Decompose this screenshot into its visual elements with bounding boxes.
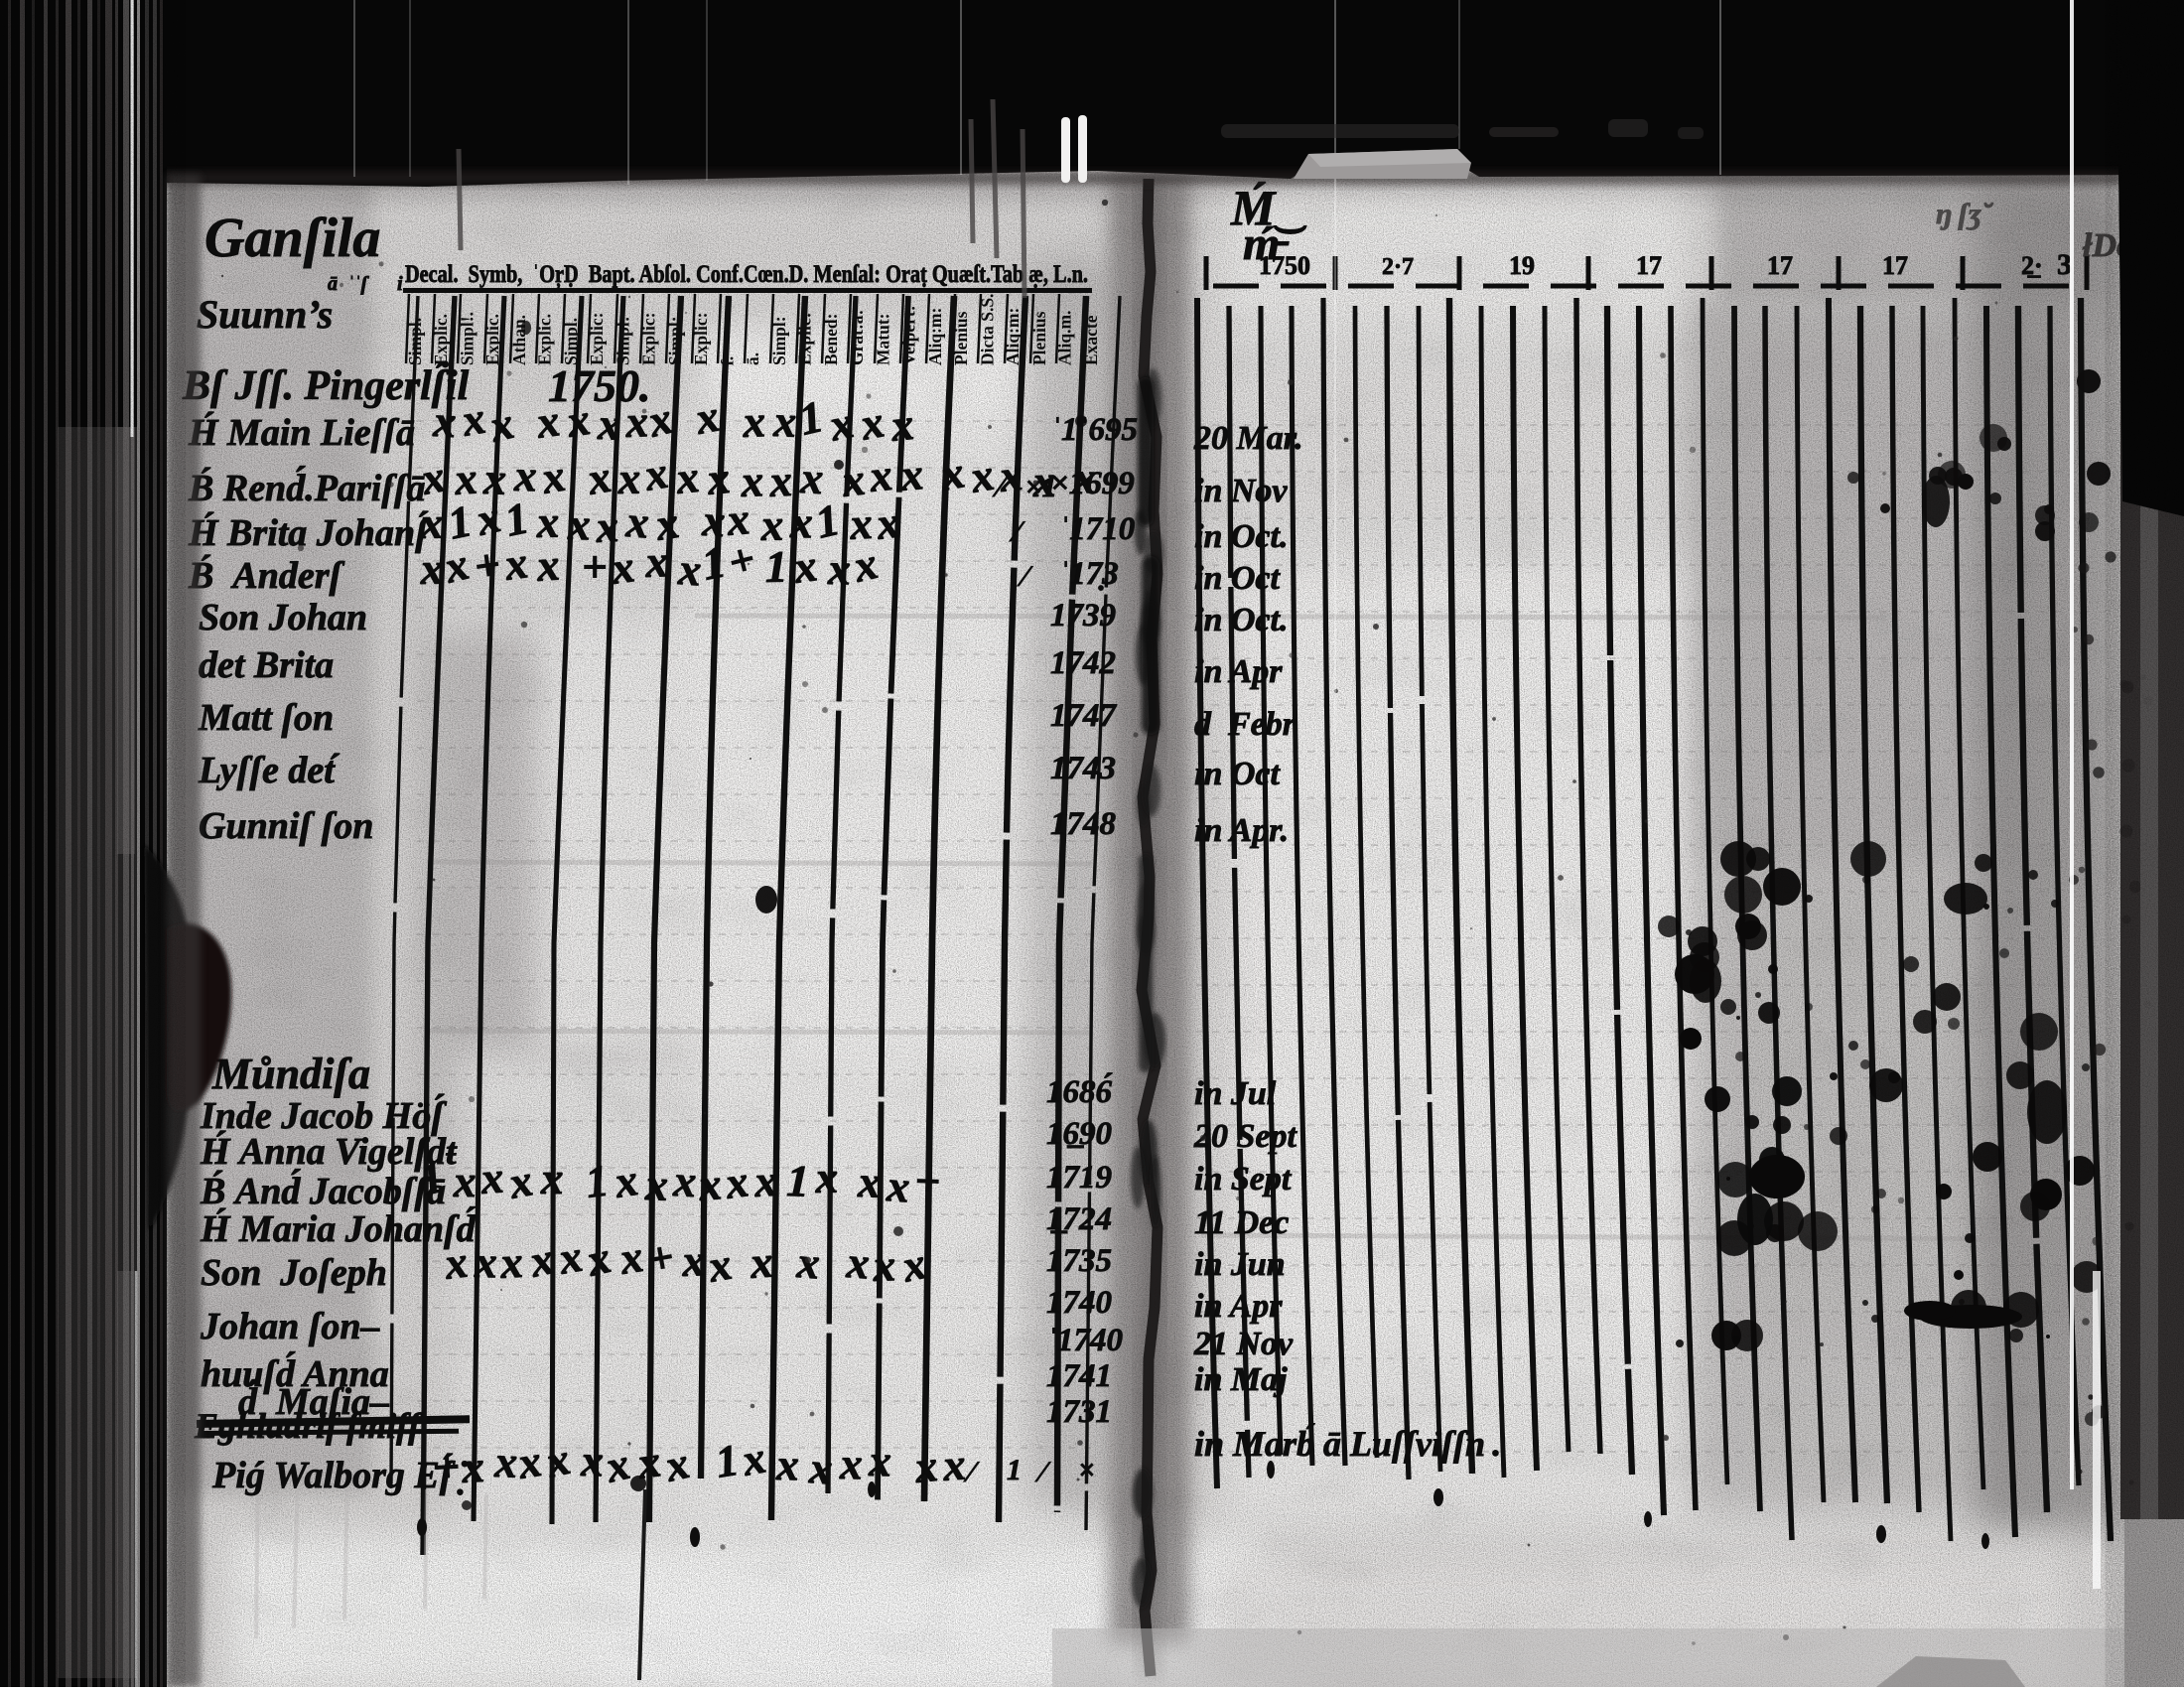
svg-text:x: x <box>827 544 851 594</box>
svg-text:1739: 1739 <box>1050 598 1116 634</box>
svg-text:x: x <box>681 1235 706 1286</box>
svg-text:x: x <box>872 1240 896 1291</box>
svg-text:Suunn’s: Suunn’s <box>197 292 333 337</box>
svg-text:2̲·: 2̲· <box>2021 251 2043 280</box>
svg-text:Ganſila: Ganſila <box>205 208 380 269</box>
svg-text:x: x <box>742 396 766 447</box>
svg-text:+: + <box>433 1442 461 1492</box>
svg-text:ˈ17̣3: ˈ17̣3 <box>1050 556 1119 592</box>
svg-text:1740: 1740 <box>1046 1285 1112 1321</box>
svg-text:1686́: 1686́ <box>1046 1072 1113 1110</box>
svg-text:Matt ſon: Matt ſon <box>198 697 334 739</box>
svg-text:20 Mar.: 20 Mar. <box>1193 420 1303 457</box>
svg-text:x: x <box>453 1157 477 1206</box>
svg-text:1̲724: 1̲724 <box>1046 1201 1112 1237</box>
svg-text:16̲90: 16̲90 <box>1046 1116 1112 1152</box>
svg-text:in Oct.: in Oct. <box>1194 602 1288 638</box>
svg-text:×1699: ×1699 <box>1050 466 1135 501</box>
svg-text:Můndiſa: Můndiſa <box>211 1050 370 1098</box>
svg-text:1742: 1742 <box>1050 645 1116 681</box>
svg-text:B́ And́ Jacobſſā: B́ And́ Jacobſſā <box>200 1170 446 1212</box>
svg-text:1: 1 <box>786 1156 810 1206</box>
svg-text:1719: 1719 <box>1046 1160 1112 1196</box>
svg-text:in Maj: in Maj <box>1194 1361 1288 1398</box>
svg-text:in Jun: in Jun <box>1194 1246 1286 1283</box>
svg-text:+: + <box>914 1156 941 1206</box>
svg-text:x: x <box>696 1159 724 1210</box>
svg-text:x: x <box>807 1443 834 1494</box>
svg-text:in Oct: in Oct <box>1194 560 1282 597</box>
svg-text:x: x <box>644 1160 669 1210</box>
svg-text:in Apr.: in Apr. <box>1194 812 1289 849</box>
svg-text:x: x <box>498 1237 524 1288</box>
svg-text:17: 17 <box>1882 251 1908 280</box>
svg-text:+: + <box>582 542 608 592</box>
svg-text:in Oct.: in Oct. <box>1194 518 1288 555</box>
svg-text:x: x <box>643 536 668 587</box>
svg-text:1731: 1731 <box>1046 1394 1112 1430</box>
svg-text:Lyſſe det́: Lyſſe det́ <box>198 750 341 791</box>
svg-text:x: x <box>597 399 621 450</box>
svg-text:Son Johan: Son Johan <box>199 597 367 638</box>
svg-text:x: x <box>540 1154 564 1203</box>
svg-text:x: x <box>534 540 561 592</box>
svg-text:21 Nov: 21 Nov <box>1193 1326 1294 1362</box>
svg-text:ˈ1710: ˈ1710 <box>1050 511 1135 547</box>
svg-text:B́ Rend́.Pariſſā: B́ Rend́.Pariſſā <box>188 467 426 509</box>
svg-text:x: x <box>493 1437 518 1487</box>
svg-text:Gunniſ ſon: Gunniſ ſon <box>199 805 373 847</box>
svg-text:ˈ1ˈ695: ˈ1ˈ695 <box>1050 412 1138 448</box>
svg-text:H́ Maria Johanſd́: H́ Maria Johanſd́ <box>200 1207 477 1250</box>
svg-text:x: x <box>478 1153 505 1204</box>
svg-text:ā ˈˈſ i: ā ˈˈſ i <box>328 273 403 295</box>
svg-text:x: x <box>672 1156 698 1206</box>
svg-text:x: x <box>940 1440 967 1491</box>
svg-text:Johan ſon–: Johan ſon– <box>200 1306 380 1347</box>
svg-text:1743: 1743 <box>1050 751 1116 786</box>
svg-text:in Marb́ ā Luſſviſſn .: in Marb́ ā Luſſviſſn . <box>1194 1423 1501 1464</box>
svg-text:19: 19 <box>1509 251 1535 280</box>
svg-text:det Brita: det Brita <box>199 644 334 686</box>
svg-text:Decal. Symb, ˈOr̦Ḍ Bapt. A: Decal. Symb, ˈOr̦Ḍ Bapt. Abſol. Conf.Cœ… <box>405 261 1088 289</box>
svg-text:x: x <box>474 1237 497 1287</box>
svg-text:ˈ1740: ˈ1740 <box>1046 1323 1123 1358</box>
svg-text:x: x <box>857 1157 882 1207</box>
svg-text:1: 1 <box>1007 1454 1022 1486</box>
svg-text:x: x <box>752 1156 778 1206</box>
svg-text:1741: 1741 <box>1046 1358 1112 1394</box>
svg-text:20 Sept: 20 Sept <box>1193 1118 1298 1155</box>
svg-text:in Oct: in Oct <box>1194 756 1282 792</box>
svg-text:17: 17 <box>1636 251 1662 280</box>
svg-text:3: 3 <box>2057 248 2072 281</box>
svg-text:x: x <box>772 396 797 447</box>
svg-text:x: x <box>460 1442 485 1492</box>
svg-text:x: x <box>432 396 458 447</box>
svg-text:in Apr: in Apr <box>1194 653 1283 690</box>
svg-text:x: x <box>839 1439 863 1488</box>
svg-text:1748: 1748 <box>1050 806 1116 842</box>
svg-text:x: x <box>799 453 825 503</box>
svg-text:x: x <box>419 544 443 594</box>
svg-text:in Apr: in Apr <box>1194 1288 1283 1325</box>
svg-text:∕ ×1: ∕ ×1 <box>992 471 1057 503</box>
svg-text:Son Joſeph: Son Joſeph <box>201 1252 387 1294</box>
svg-text:H́ Main Lieſſā: H́ Main Lieſſā <box>188 412 415 454</box>
svg-text:x: x <box>767 456 793 506</box>
svg-text:17: 17 <box>1767 251 1793 280</box>
svg-text:in Nov: in Nov <box>1194 473 1288 509</box>
svg-text:1747: 1747 <box>1050 698 1118 734</box>
svg-text:in Sept: in Sept <box>1194 1161 1293 1198</box>
svg-text:x: x <box>419 498 443 548</box>
svg-text:x: x <box>814 1153 838 1202</box>
svg-text:x: x <box>897 449 925 500</box>
svg-text:x: x <box>676 544 703 596</box>
svg-text:1735: 1735 <box>1046 1243 1112 1279</box>
svg-text:x: x <box>844 1237 871 1289</box>
svg-text:x: x <box>775 1440 799 1489</box>
svg-text:x: x <box>885 1161 911 1212</box>
svg-text:B́ Anderſ: B́ Anderſ <box>188 555 351 597</box>
svg-text:d Febr: d Febr <box>1194 706 1297 743</box>
svg-text:ŋ ſʒ˘: ŋ ſʒ˘ <box>1936 198 1993 230</box>
svg-text:x: x <box>748 1237 774 1289</box>
svg-text:Piǵ Walborg Eſ́ ̣̇: Piǵ Walborg Eſ́ ̣̇ <box>211 1454 468 1496</box>
svg-text:Bſ Jſſ. Pingerlẛ́il: Bſ Jſſ. Pingerlẛ́il <box>182 360 469 409</box>
svg-text:×: × <box>1078 1454 1095 1486</box>
svg-text:H́ Brita Johanſ́: H́ Brita Johanſ́ <box>188 511 431 554</box>
svg-text:1: 1 <box>764 542 787 592</box>
svg-text:x: x <box>868 1436 891 1485</box>
svg-text:in Jul: in Jul <box>1194 1075 1277 1112</box>
svg-text:11 Dec: 11 Dec <box>1194 1204 1289 1241</box>
svg-text:2·7: 2·7 <box>1382 254 1414 280</box>
